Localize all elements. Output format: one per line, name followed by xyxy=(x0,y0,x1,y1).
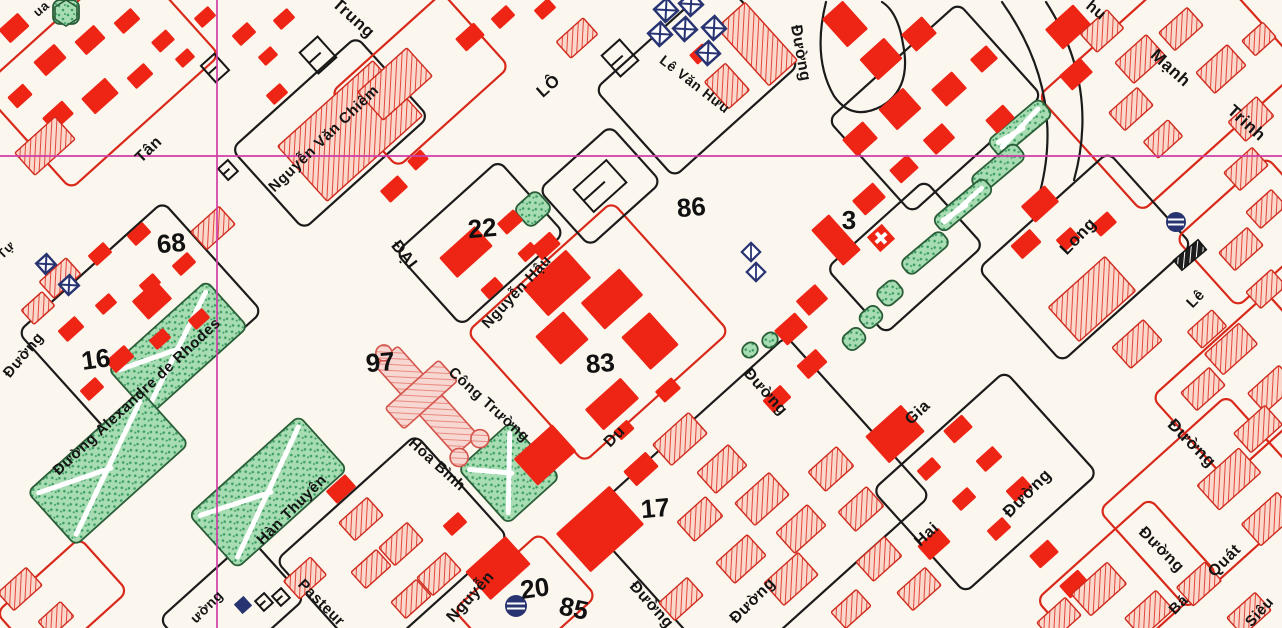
saigon-street-map: uaTrungTânNguyễn Văn ChiêmĐườngTựĐường A… xyxy=(0,0,1282,628)
lined-circle-symbol xyxy=(1166,212,1186,232)
block-number: 86 xyxy=(676,191,707,223)
block-number: 3 xyxy=(842,205,856,235)
map-stage: uaTrungTânNguyễn Văn ChiêmĐườngTựĐường A… xyxy=(0,0,1282,628)
block-number: 83 xyxy=(585,347,616,379)
block-number: 20 xyxy=(518,571,551,605)
lined-circle xyxy=(1166,212,1186,232)
block-number: 97 xyxy=(365,346,396,378)
block-number: 68 xyxy=(156,227,187,259)
block-number: 22 xyxy=(467,212,498,244)
block-number: 17 xyxy=(640,492,671,524)
block-number: 85 xyxy=(557,591,592,626)
block-number: 16 xyxy=(79,342,112,376)
